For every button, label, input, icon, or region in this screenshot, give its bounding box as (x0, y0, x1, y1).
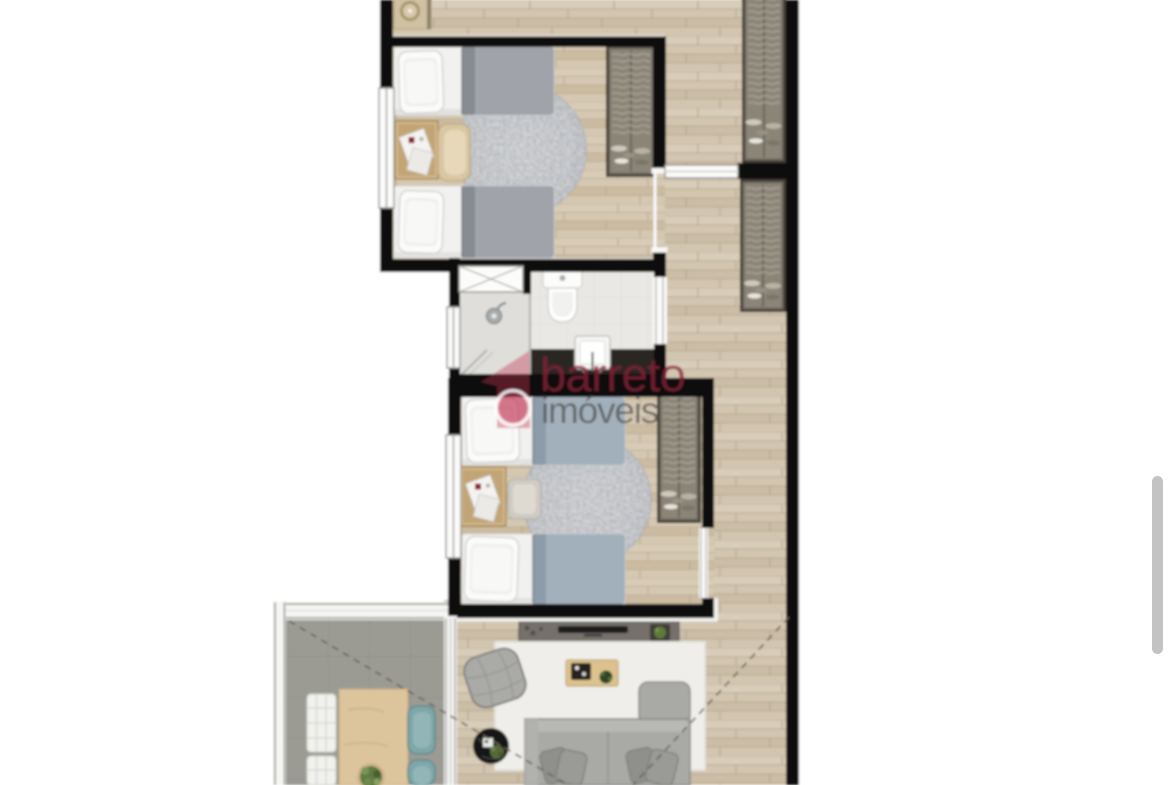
svg-text:imóveis: imóveis (541, 390, 659, 431)
